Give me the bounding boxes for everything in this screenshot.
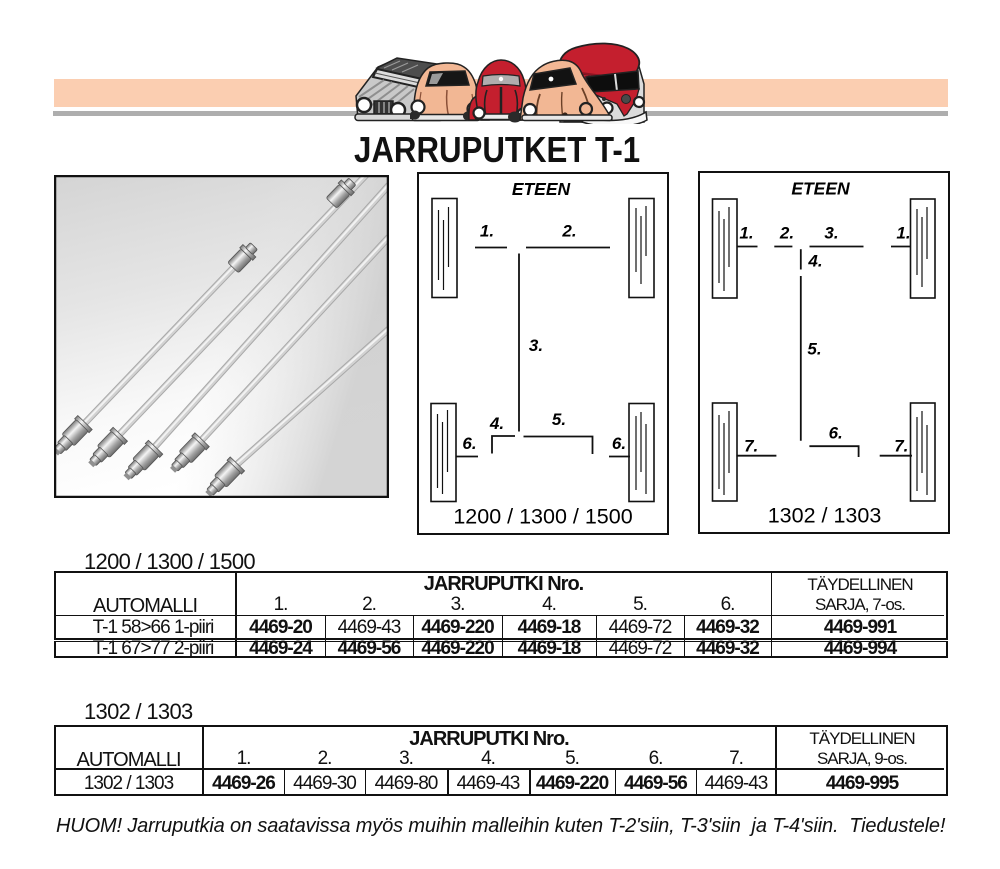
svg-text:6.: 6. — [612, 434, 626, 453]
svg-text:4.: 4. — [807, 252, 822, 271]
svg-text:4.: 4. — [489, 414, 504, 433]
svg-text:1.: 1. — [896, 224, 910, 243]
svg-text:1200 / 1300 / 1500: 1200 / 1300 / 1500 — [453, 504, 632, 528]
svg-text:2.: 2. — [778, 224, 793, 243]
svg-text:7.: 7. — [894, 437, 908, 456]
svg-text:5.: 5. — [552, 410, 566, 429]
svg-text:1.: 1. — [739, 224, 753, 243]
svg-text:1302 / 1303: 1302 / 1303 — [767, 504, 881, 528]
svg-text:ETEEN: ETEEN — [791, 179, 850, 199]
svg-text:6.: 6. — [462, 434, 476, 453]
svg-text:5.: 5. — [807, 340, 821, 359]
svg-text:3.: 3. — [529, 336, 543, 355]
svg-text:3.: 3. — [824, 224, 838, 243]
svg-text:2.: 2. — [561, 221, 576, 240]
svg-text:ETEEN: ETEEN — [512, 179, 571, 199]
svg-text:7.: 7. — [744, 437, 758, 456]
svg-text:1.: 1. — [480, 221, 494, 240]
svg-text:6.: 6. — [828, 424, 842, 443]
